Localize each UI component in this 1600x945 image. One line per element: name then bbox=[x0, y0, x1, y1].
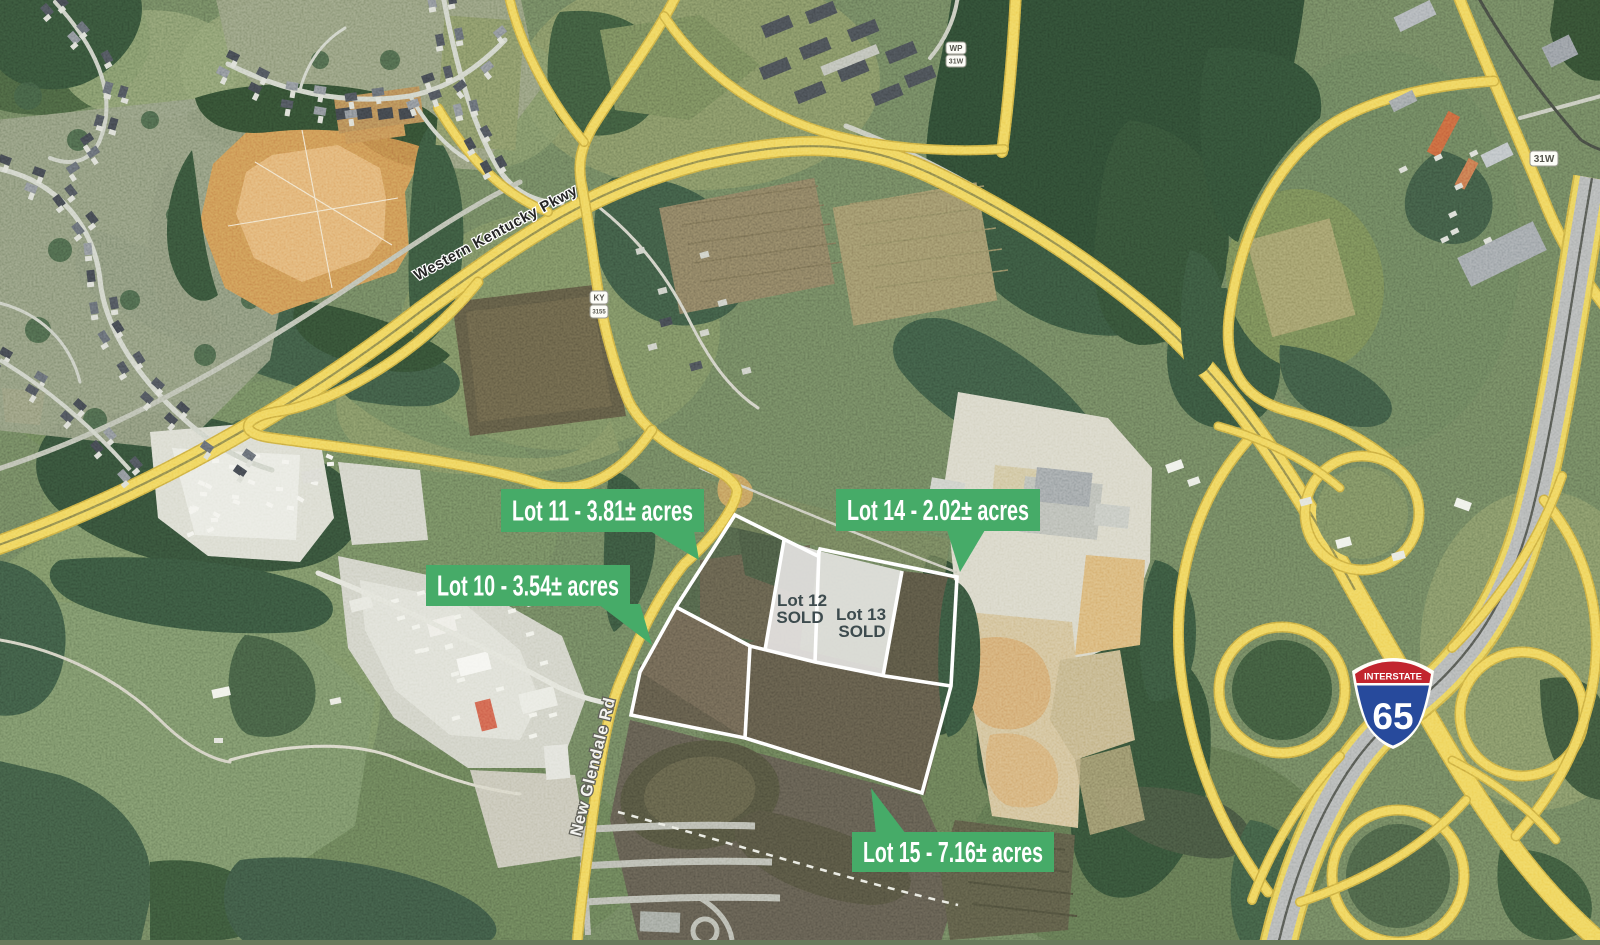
svg-text:Lot 11 - 3.81± acres: Lot 11 - 3.81± acres bbox=[512, 496, 693, 528]
svg-text:Lot 10 - 3.54± acres: Lot 10 - 3.54± acres bbox=[437, 571, 619, 603]
svg-text:Lot 14 - 2.02± acres: Lot 14 - 2.02± acres bbox=[847, 495, 1029, 527]
svg-text:SOLD: SOLD bbox=[776, 608, 823, 627]
svg-text:WP: WP bbox=[950, 44, 964, 53]
svg-text:Lot 15 - 7.16± acres: Lot 15 - 7.16± acres bbox=[863, 837, 1043, 869]
svg-text:31W: 31W bbox=[949, 59, 964, 66]
svg-text:65: 65 bbox=[1372, 696, 1413, 737]
svg-text:KY: KY bbox=[593, 293, 605, 302]
svg-text:3155: 3155 bbox=[592, 310, 606, 316]
svg-text:INTERSTATE: INTERSTATE bbox=[1364, 672, 1422, 682]
svg-text:31W: 31W bbox=[1534, 154, 1555, 165]
svg-text:SOLD: SOLD bbox=[838, 622, 885, 641]
